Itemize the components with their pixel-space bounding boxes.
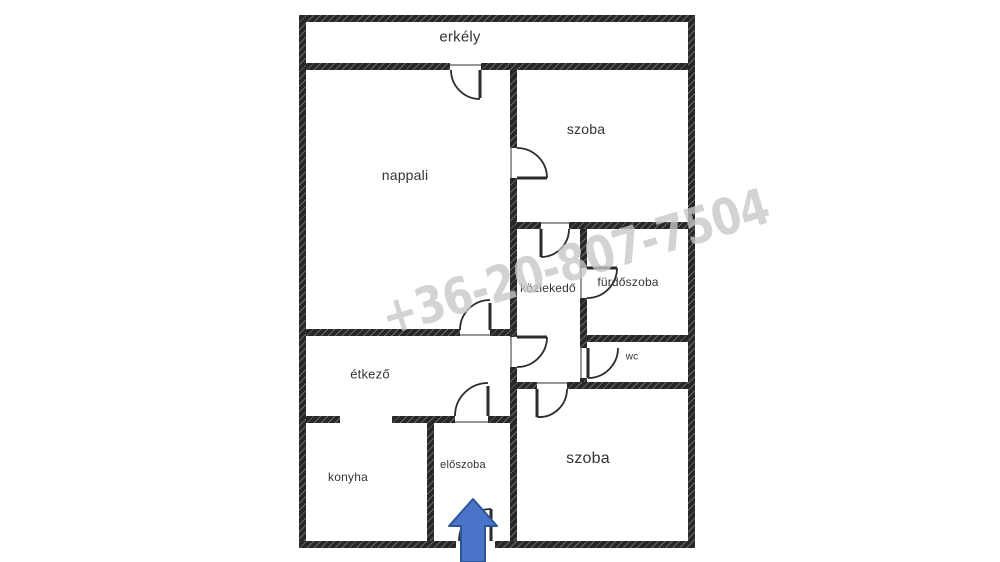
wall-outer-bottom-right <box>495 541 695 548</box>
room-label-erkely: erkély <box>439 29 480 46</box>
wall-furdoszoba-wc <box>580 335 688 342</box>
threshold-nappali-etkezo-door <box>460 334 490 336</box>
floor-plan: erkély nappali szoba közlekedő fürdőszob… <box>0 0 1000 562</box>
room-label-nappali: nappali <box>382 167 429 183</box>
wall-center-vertical-a <box>510 70 517 148</box>
wall-balcony-right <box>481 63 688 70</box>
threshold-eloszoba-door <box>455 421 488 423</box>
wall-etkezo-konyha-stub <box>306 416 340 423</box>
room-label-wc: wc <box>626 352 639 363</box>
wall-kozlekedo-furdoszoba-b <box>580 298 587 348</box>
threshold-szoba-top-door <box>510 148 512 178</box>
door-arc-szoba-top <box>517 148 547 178</box>
room-label-eloszoba: előszoba <box>440 459 486 471</box>
wall-etkezo-eloszoba-left <box>392 416 455 423</box>
wall-outer-right <box>688 15 695 548</box>
wall-outer-top <box>299 15 695 22</box>
threshold-balcony-door <box>450 64 481 66</box>
door-arc-eloszoba-etkezo <box>455 383 488 416</box>
wall-outer-left <box>299 15 306 548</box>
wall-szoba-bottom-top-left <box>510 382 537 389</box>
page: erkély nappali szoba közlekedő fürdőszob… <box>0 0 1000 562</box>
door-arc-szoba-bottom <box>537 389 567 417</box>
threshold-kozlekedo-door <box>541 222 569 224</box>
wall-nappali-etkezo-right <box>490 329 517 336</box>
door-arc-wc <box>588 348 618 378</box>
door-arc-etkezo-kozlekedo <box>517 337 547 367</box>
door-arc-balcony <box>451 70 480 99</box>
wall-center-vertical-c <box>510 367 517 541</box>
wall-etkezo-eloszoba-right <box>488 416 517 423</box>
wall-balcony-left <box>306 63 450 70</box>
door-arc-entrance <box>459 509 491 541</box>
wall-szoba-top-bottom-left <box>510 222 541 229</box>
wall-konyha-eloszoba <box>427 423 434 541</box>
threshold-etkezo-kozlekedo-door <box>510 337 512 367</box>
watermark-phone-number: +36-20-807-7504 <box>374 177 775 347</box>
room-label-etkezo: étkező <box>350 367 390 382</box>
wall-outer-bottom-left <box>299 541 456 548</box>
threshold-szoba-bottom-door <box>537 382 567 384</box>
entrance-arrow-shape <box>449 499 497 562</box>
room-label-konyha: konyha <box>328 470 368 484</box>
threshold-wc-door <box>580 348 582 378</box>
wall-szoba-bottom-top-right <box>567 382 688 389</box>
room-label-szoba-also: szoba <box>566 450 610 468</box>
room-label-szoba-felso: szoba <box>567 121 605 137</box>
